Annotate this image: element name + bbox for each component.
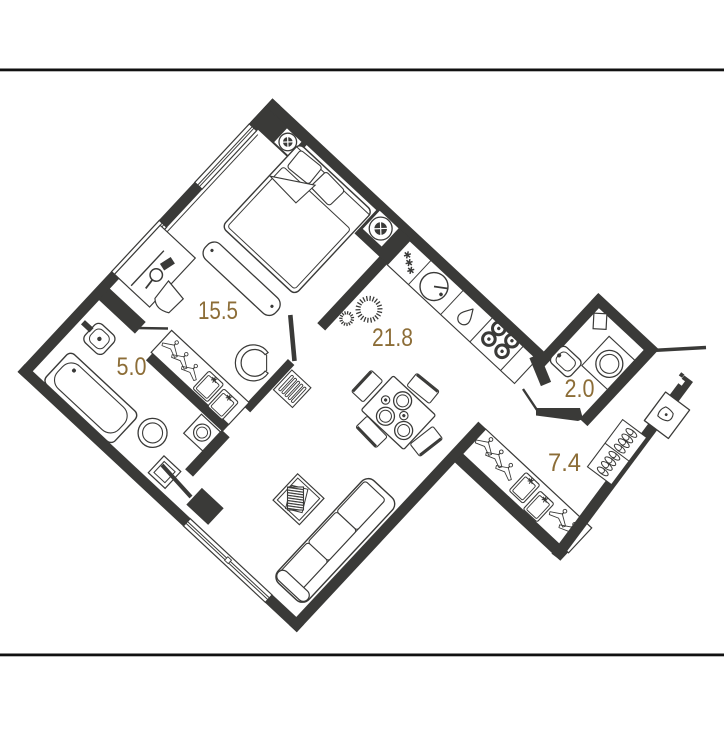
svg-text:7.4: 7.4 <box>548 449 581 477</box>
svg-text:15.5: 15.5 <box>198 297 238 325</box>
svg-text:21.8: 21.8 <box>372 324 413 352</box>
svg-text:2.0: 2.0 <box>565 375 595 403</box>
svg-text:5.0: 5.0 <box>117 353 147 381</box>
